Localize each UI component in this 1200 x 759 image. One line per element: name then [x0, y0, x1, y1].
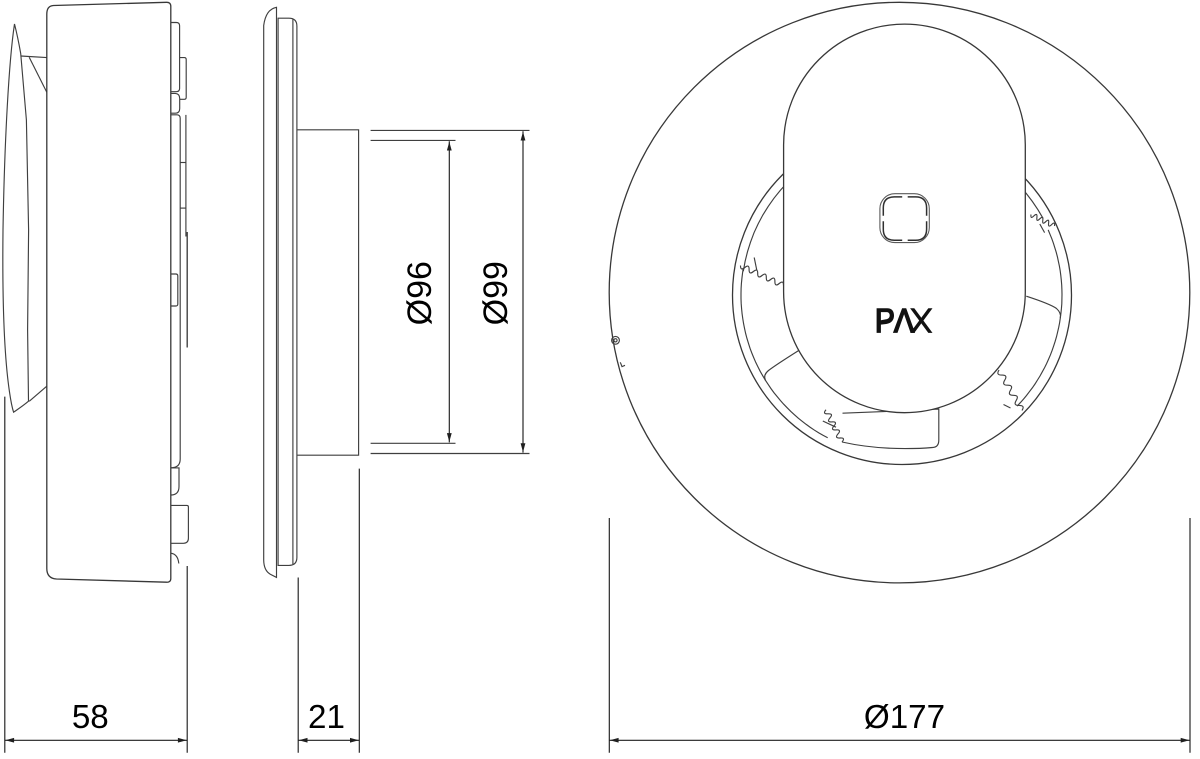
svg-text:21: 21: [308, 699, 345, 736]
svg-text:58: 58: [72, 699, 109, 736]
svg-text:Ø177: Ø177: [864, 699, 945, 736]
svg-text:Ø99: Ø99: [477, 261, 515, 325]
svg-text:Ø96: Ø96: [401, 261, 439, 325]
